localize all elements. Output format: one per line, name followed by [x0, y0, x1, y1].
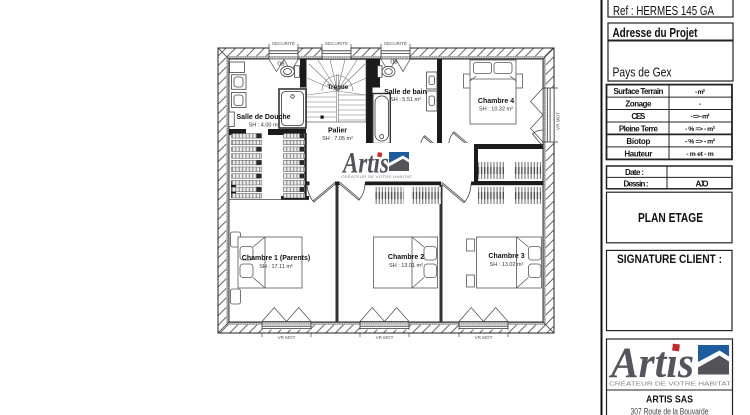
- svg-text:VR MOT: VR MOT: [475, 335, 493, 340]
- svg-text:- % => - m²: - % => - m²: [685, 139, 716, 146]
- svg-text:Date :: Date :: [625, 168, 644, 177]
- svg-text:Ref : HERMES 145 GA: Ref : HERMES 145 GA: [613, 3, 714, 18]
- svg-text:SH : 17.11 m²: SH : 17.11 m²: [259, 264, 293, 270]
- svg-text:Adresse du Projet: Adresse du Projet: [613, 25, 699, 40]
- svg-text:SH : 4.00 m²: SH : 4.00 m²: [249, 123, 280, 129]
- svg-text:SH : 7.05 m²: SH : 7.05 m²: [322, 136, 353, 142]
- svg-text:Zonage: Zonage: [625, 100, 652, 109]
- svg-text:Salle de bain: Salle de bain: [384, 89, 427, 96]
- svg-text:Chambre 1 (Parents): Chambre 1 (Parents): [242, 255, 310, 262]
- svg-text:AJO: AJO: [696, 179, 709, 188]
- svg-text:VR MOT: VR MOT: [556, 112, 561, 130]
- svg-text:Palier: Palier: [328, 128, 347, 135]
- svg-text:Salle de Douche: Salle de Douche: [236, 114, 290, 121]
- svg-text:SH : 13.01 m²: SH : 13.01 m²: [389, 263, 423, 269]
- svg-text:307 Route de la Bouvarde: 307 Route de la Bouvarde: [631, 407, 709, 415]
- svg-text:Pleine Terre: Pleine Terre: [619, 125, 659, 134]
- svg-text:VR MOT: VR MOT: [376, 335, 394, 340]
- svg-text:Hauteur: Hauteur: [624, 149, 652, 158]
- svg-text:SECURITÉ: SECURITÉ: [325, 40, 348, 46]
- svg-text:- m²: - m²: [695, 89, 706, 96]
- svg-text:Dessin :: Dessin :: [624, 179, 649, 188]
- svg-text:SECURITÉ: SECURITÉ: [272, 40, 295, 46]
- svg-text:Pays de Gex: Pays de Gex: [613, 66, 673, 80]
- svg-text:- m et - m: - m et - m: [686, 151, 714, 158]
- svg-text:PLAN ETAGE: PLAN ETAGE: [638, 211, 703, 225]
- svg-text:Biotop: Biotop: [626, 137, 650, 146]
- svg-text:- => - m²: - => - m²: [691, 114, 711, 121]
- svg-text:Chambre 3: Chambre 3: [488, 253, 524, 260]
- svg-text:Chambre 4: Chambre 4: [478, 98, 514, 105]
- svg-text:Trémie: Trémie: [327, 84, 348, 91]
- svg-text:SH : 5.51 m²: SH : 5.51 m²: [390, 97, 421, 103]
- svg-text:CES: CES: [631, 112, 646, 121]
- svg-text:Artıs: Artıs: [608, 340, 694, 387]
- svg-text:OB: OB: [277, 62, 285, 68]
- svg-text:SECURITÉ: SECURITÉ: [384, 40, 407, 46]
- svg-text:SIGNATURE CLIENT :: SIGNATURE CLIENT :: [617, 254, 722, 266]
- svg-text:ARTIS SAS: ARTIS SAS: [646, 395, 693, 406]
- svg-text:VR MOT: VR MOT: [278, 335, 296, 340]
- svg-text:CRÉATEUR DE VOTRE HABITAT: CRÉATEUR DE VOTRE HABITAT: [609, 381, 732, 388]
- svg-text:Chambre 2: Chambre 2: [388, 254, 424, 261]
- svg-text:CRÉATEUR DE VOTRE HABITAT: CRÉATEUR DE VOTRE HABITAT: [341, 174, 413, 179]
- svg-text:Surface Terrain: Surface Terrain: [613, 87, 663, 96]
- svg-text:OB: OB: [390, 60, 398, 66]
- svg-text:- % => - m²: - % => - m²: [685, 126, 716, 133]
- svg-text:SH : 13.02 m²: SH : 13.02 m²: [490, 262, 524, 268]
- svg-text:SH : 10.32 m²: SH : 10.32 m²: [479, 107, 513, 113]
- svg-text:-: -: [699, 101, 701, 108]
